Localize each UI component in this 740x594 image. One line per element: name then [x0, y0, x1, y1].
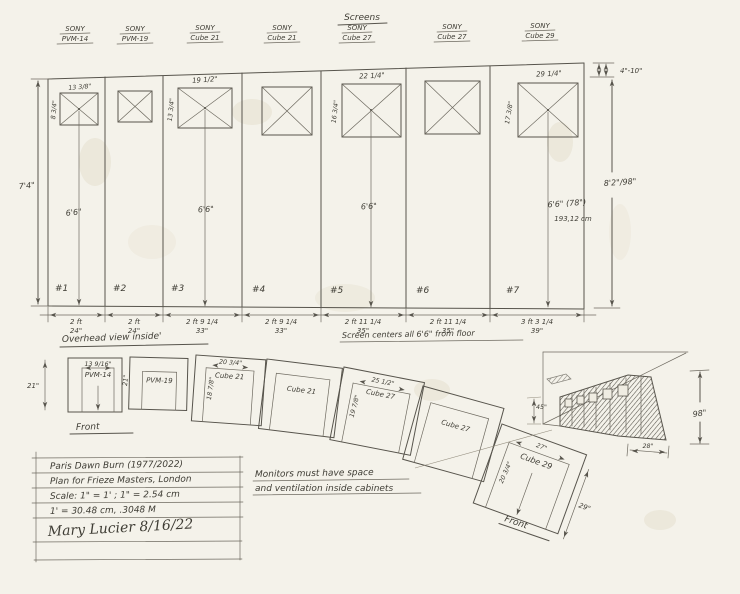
panel-1-model: PVM-14: [62, 35, 88, 43]
top-gap-label: 4"-10": [620, 67, 642, 75]
center-height-3: 6'6": [198, 205, 215, 215]
right-height-label: 8'2"/98": [604, 177, 637, 188]
width-5-ft: 2 ft 11 1/4: [345, 318, 382, 326]
floor-note-underline: [340, 340, 523, 342]
wall-outline: [48, 63, 584, 309]
width-4-ft: 2 ft 9 1/4: [265, 318, 297, 326]
overhead-front-label-1: Front: [76, 422, 100, 433]
width-3-in: 33": [196, 327, 208, 335]
cabinet-5-label: Cube 27: [365, 388, 396, 402]
center-height-5: 6'6": [361, 202, 378, 212]
overhead-cabinet-7: 27" Cube 29 20 3/4" 29": [472, 424, 607, 544]
cabinet-3-top-dim: 20 3/4": [219, 359, 243, 368]
overhead-cabinet-4: Cube 21: [258, 359, 342, 438]
cabinet-5-top-dim: 25 1/2": [371, 377, 395, 388]
title-block-scale: Scale: 1" = 1' ; 1" = 2.54 cm: [50, 490, 180, 502]
screen-boxes: [60, 81, 578, 137]
cabinet-1-left-dim: 21": [27, 382, 39, 390]
screen-3-width: 19 1/2": [192, 75, 218, 85]
overhead-cabinet-1: 13 9/16" PVM-14: [68, 358, 122, 412]
center-height-1: 6'6": [65, 207, 82, 218]
screen-box-2: [118, 91, 152, 122]
page-title: Screens: [344, 13, 380, 23]
cabinet-6-label: Cube 27: [440, 418, 471, 434]
perspective-gap-dim: 45": [536, 404, 547, 411]
signature: Mary Lucier 8/16/22: [46, 516, 193, 540]
screen-1-width: 13 3/8": [68, 83, 92, 92]
title-block-conversion: 1' = 30.48 cm, .3048 M: [50, 505, 156, 517]
panel-4-model: Cube 21: [267, 34, 296, 42]
screen-5-height: 16 3/4": [331, 100, 341, 124]
perspective-height-dim: 98": [692, 408, 707, 419]
panel-4-number: #4: [252, 285, 266, 295]
screen-box-5: [342, 84, 401, 137]
overhead-front-label-2-group: Front: [499, 513, 553, 541]
panel-7-number: #7: [506, 286, 520, 296]
panel-7-brand: SONY: [530, 22, 550, 30]
panel-3-model: Cube 21: [190, 34, 219, 42]
screen-box-6: [425, 81, 480, 134]
panel-5-brand: SONY: [347, 24, 367, 32]
panel-7-model: Cube 29: [525, 32, 555, 40]
width-2-ft: 2 ft: [128, 318, 140, 326]
title-block-artwork: Paris Dawn Burn (1977/2022): [50, 460, 183, 472]
cabinet-7-top-dim: 27": [535, 442, 548, 452]
cabinet-1-label: PVM-14: [85, 371, 111, 379]
panel-headers: SONY PVM-14 SONY PVM-19 SONY Cube 21 SON…: [57, 22, 558, 44]
overhead-title: Overhead view inside': [62, 332, 162, 345]
panel-6-number: #6: [416, 286, 430, 296]
panel-5-number: #5: [330, 286, 344, 296]
width-1-ft: 2 ft: [70, 318, 82, 326]
screen-7-height: 17 3/8": [504, 101, 515, 125]
cabinet-1-top-dim: 13 9/16": [84, 361, 111, 368]
title-block-plan: Plan for Frieze Masters, London: [50, 475, 192, 487]
screen-1-height: 8 3/4": [50, 100, 59, 120]
cabinet-3-label: Cube 21: [215, 371, 245, 381]
width-4-in: 33": [275, 327, 287, 335]
width-3-ft: 2 ft 9 1/4: [186, 318, 218, 326]
panel-3-brand: SONY: [195, 24, 215, 32]
perspective-depth-dim: 28": [643, 443, 654, 450]
panel-numbers: #1 #2 #3 #4 #5 #6 #7: [55, 284, 520, 296]
panel-1-number: #1: [55, 284, 68, 294]
left-height-dimension: 7'4": [18, 79, 52, 306]
sheet: Screens SONY PVM-14 SONY PVM-19 SONY Cub…: [0, 0, 740, 594]
panel-2-number: #2: [113, 284, 127, 294]
title-block: Paris Dawn Burn (1977/2022) Plan for Fri…: [32, 452, 243, 562]
top-gap-dimension: 4"-10": [590, 63, 642, 77]
width-7-ft: 3 ft 3 1/4: [521, 318, 553, 326]
bottom-width-dimensions: 2 ft 24" 2 ft 24" 2 ft 9 1/4 33" 2 ft 9 …: [40, 307, 596, 335]
overhead-cabinet-5: 25 1/2" Cube 27 19 7/8": [330, 367, 425, 455]
panel-4-brand: SONY: [272, 24, 292, 32]
panel-1-brand: SONY: [65, 25, 85, 33]
right-height-dimension: 8'2"/98": [594, 80, 637, 308]
hatched-wall: [560, 375, 666, 440]
panel-3-number: #3: [171, 284, 185, 294]
width-7-in: 39": [531, 327, 543, 335]
overhead-cabinet-2: PVM-19: [129, 357, 188, 411]
front-1-underline: [70, 433, 133, 434]
screen-dimensions: 13 3/8" 8 3/4" 19 1/2" 13 3/4" 22 1/4" 1…: [50, 69, 562, 124]
overhead-cabinet-3: 20 3/4" Cube 21 18 7/8": [191, 355, 265, 426]
screen-5-width: 22 1/4": [359, 71, 385, 80]
screen-3-height: 13 3/4": [167, 98, 176, 122]
ventilation-note-line-1: Monitors must have space: [255, 468, 374, 480]
center-height-7-cm: 193,12 cm: [554, 215, 592, 223]
panel-6-model: Cube 27: [437, 33, 467, 41]
cabinet-1-side-dim: 21": [122, 375, 130, 387]
hand-drawn-plan: Screens SONY PVM-14 SONY PVM-19 SONY Cub…: [0, 0, 740, 594]
overhead-title-underline: [60, 344, 208, 347]
panel-5-model: Cube 27: [342, 34, 372, 42]
cabinet-3-left-dim: 18 7/8": [206, 377, 216, 401]
cabinet-4-label: Cube 21: [286, 385, 316, 397]
screen-center-lines: 6'6" 6'6" 6'6" 6'6" (78") 193,12 cm: [65, 110, 592, 307]
center-height-7: 6'6" (78"): [547, 198, 586, 210]
panel-2-model: PVM-19: [122, 35, 149, 43]
left-height-label: 7'4": [18, 181, 35, 191]
overhead-cabinet-1-left-dim: 21": [27, 360, 47, 410]
panel-6-brand: SONY: [442, 23, 462, 31]
width-6-ft: 2 ft 11 1/4: [430, 318, 467, 326]
floor-note: Screen centers all 6'6" from floor: [342, 329, 476, 340]
cabinet-2-label: PVM-19: [146, 376, 173, 385]
screen-7-width: 29 1/4": [536, 69, 562, 78]
cabinet-7-label: Cube 29: [519, 452, 553, 472]
ventilation-note-line-2: and ventilation inside cabinets: [255, 484, 393, 494]
cabinet-7-right-dim: 29": [578, 501, 592, 513]
flag-shape: [547, 374, 571, 384]
panel-2-brand: SONY: [125, 25, 145, 33]
perspective-sketch: 98" 28" 45": [527, 352, 709, 458]
cabinet-7-left-dim: 20 3/4": [498, 461, 514, 485]
